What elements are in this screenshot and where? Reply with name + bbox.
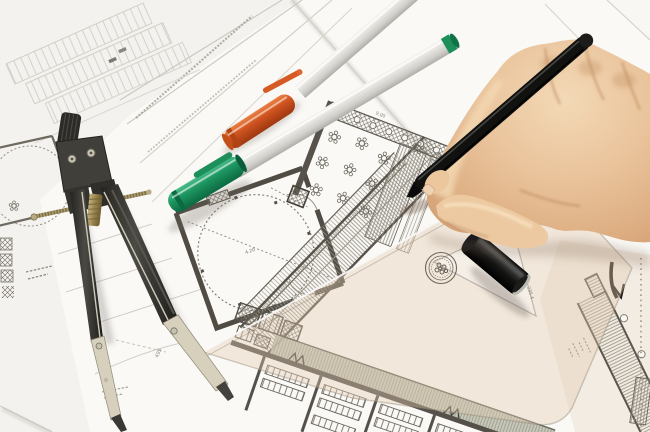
- plan-column: [2, 286, 14, 298]
- blueprint-photo: 4.20 9.00: [0, 0, 650, 432]
- plan-column: [0, 238, 12, 250]
- plan-column: [1, 270, 13, 282]
- plan-column: [0, 254, 12, 266]
- photo-scene: 4.20 9.00: [0, 0, 650, 432]
